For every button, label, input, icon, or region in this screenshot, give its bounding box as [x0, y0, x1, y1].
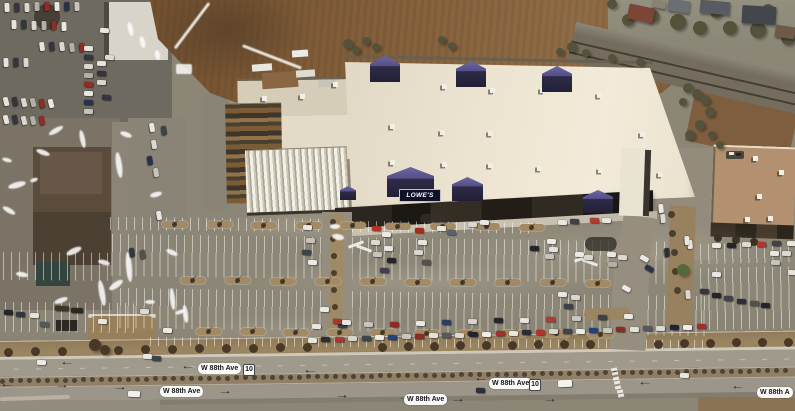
car: [418, 240, 427, 245]
light-pole-shadow: [351, 221, 357, 229]
car: [105, 55, 114, 60]
shrub: [288, 375, 293, 380]
car: [312, 324, 321, 329]
shrub: [522, 372, 527, 377]
car: [102, 95, 111, 100]
parking-island: [180, 277, 206, 284]
car: [575, 252, 584, 257]
parking-island: [196, 328, 222, 335]
garden-center-roof: [245, 146, 349, 216]
car: [416, 321, 425, 326]
shrub: [171, 376, 176, 381]
shrub: [99, 377, 104, 382]
shrub: [630, 370, 635, 375]
car: [659, 204, 664, 213]
parking-island: [360, 278, 386, 285]
shrub: [540, 371, 545, 376]
shrub: [297, 375, 302, 380]
car: [4, 310, 13, 315]
car: [772, 241, 781, 246]
car: [737, 299, 746, 304]
hvac-unit: [490, 88, 495, 93]
house-roof: [699, 0, 730, 15]
shrub: [756, 368, 761, 373]
tree: [100, 345, 110, 355]
car: [84, 46, 93, 51]
car: [536, 330, 545, 335]
shrub: [729, 369, 734, 374]
tree: [372, 43, 380, 51]
car: [390, 321, 399, 326]
tree: [750, 22, 766, 38]
car: [570, 219, 579, 224]
parking-island: [207, 221, 233, 228]
shrub: [162, 376, 167, 381]
car: [482, 331, 491, 336]
shrub: [783, 368, 788, 373]
parking-island: [162, 221, 188, 228]
shrub: [270, 375, 275, 380]
parking-island: [327, 329, 353, 336]
car: [128, 391, 140, 397]
parking-island: [225, 277, 251, 284]
shrub: [195, 344, 204, 353]
car: [371, 240, 380, 245]
lane-arrow: ←: [181, 362, 196, 372]
car: [509, 331, 518, 336]
shrub: [450, 373, 455, 378]
shrub: [621, 370, 626, 375]
car: [348, 336, 357, 341]
house-roof: [774, 25, 795, 40]
car: [97, 80, 106, 85]
tree: [556, 48, 564, 56]
car: [607, 252, 616, 257]
shrub: [666, 370, 671, 375]
shrub: [594, 371, 599, 376]
parking-island: [519, 224, 545, 231]
shrub: [504, 372, 509, 377]
car: [75, 2, 80, 11]
aerial-map-view[interactable]: ←←←←←←←→→→→→→→W 88th Ave10W 88th Ave10W …: [0, 0, 795, 411]
car: [373, 252, 382, 257]
car: [468, 319, 477, 324]
shrub: [459, 372, 464, 377]
hvac-unit: [390, 124, 395, 129]
car: [624, 314, 633, 319]
car: [415, 228, 424, 233]
ground-patch: [736, 153, 741, 156]
car: [712, 272, 721, 277]
car: [308, 260, 317, 265]
car: [727, 242, 736, 247]
car: [98, 319, 107, 324]
ground-patch: [729, 152, 734, 155]
car: [84, 91, 93, 96]
house-roof: [742, 5, 777, 25]
car: [5, 3, 10, 12]
tree: [708, 131, 716, 139]
car: [480, 220, 489, 225]
tree: [677, 264, 689, 276]
car: [558, 292, 567, 297]
east-strip-building-storefront: [710, 223, 793, 240]
hvac-unit: [390, 160, 395, 165]
car: [152, 356, 161, 361]
shrub: [430, 342, 439, 351]
car: [661, 214, 666, 223]
car: [302, 250, 311, 255]
car: [590, 218, 599, 223]
car: [308, 337, 317, 342]
shrub: [4, 348, 13, 357]
car: [520, 317, 529, 322]
road-label: W 88th Ave: [160, 386, 203, 397]
car: [303, 225, 312, 230]
hvac-unit: [442, 84, 447, 89]
car: [602, 218, 611, 223]
shrub: [414, 373, 419, 378]
car: [71, 308, 83, 313]
parking-island: [385, 223, 411, 230]
car: [143, 354, 152, 359]
shrub: [774, 368, 779, 373]
shrub: [404, 342, 413, 351]
car: [670, 325, 679, 330]
car: [342, 320, 351, 325]
tree: [448, 42, 456, 50]
shrub: [144, 377, 149, 382]
car: [530, 246, 539, 251]
parking-island: [540, 279, 566, 286]
snow-patch: [330, 224, 340, 229]
lane-arrow: →: [55, 381, 70, 391]
car: [65, 2, 70, 11]
shrub: [351, 374, 356, 379]
lane-arrow: ←: [0, 380, 15, 390]
shrub: [189, 376, 194, 381]
tree: [716, 141, 724, 149]
shrub: [468, 372, 473, 377]
shrub: [639, 370, 644, 375]
car: [24, 58, 29, 67]
car: [30, 313, 39, 318]
road-label: W 88th A: [757, 387, 793, 398]
hvac-unit: [488, 131, 493, 136]
tree: [723, 21, 737, 35]
shrub: [405, 373, 410, 378]
shrub: [549, 371, 554, 376]
shrub: [706, 339, 715, 348]
tree: [352, 46, 360, 54]
car: [630, 327, 639, 332]
ground-patch: [292, 49, 308, 57]
car: [589, 328, 598, 333]
car: [455, 332, 464, 337]
shrub: [114, 346, 123, 355]
car: [603, 327, 612, 332]
tree: [705, 107, 715, 117]
car: [384, 246, 393, 251]
shrub: [249, 344, 258, 353]
shrub: [758, 338, 767, 347]
shrub: [225, 376, 230, 381]
car: [787, 241, 795, 246]
hvac-unit: [488, 163, 493, 168]
road-label: W 88th Ave: [404, 394, 447, 405]
shrub: [513, 372, 518, 377]
car: [724, 296, 733, 301]
car: [563, 329, 572, 334]
shrub: [668, 211, 675, 218]
road-label: W 88th Ave: [198, 363, 241, 374]
car: [683, 325, 692, 330]
car: [576, 328, 585, 333]
shrub: [784, 338, 793, 347]
route-shield: 10: [529, 379, 541, 391]
hvac-unit: [757, 194, 762, 199]
car: [697, 324, 706, 329]
shrub: [586, 340, 595, 349]
car: [140, 309, 149, 314]
shrub: [279, 375, 284, 380]
tree: [582, 49, 590, 57]
shrub: [423, 373, 428, 378]
car: [656, 326, 665, 331]
shrub: [234, 375, 239, 380]
tree: [685, 130, 695, 140]
shrub: [369, 374, 374, 379]
shrub: [576, 371, 581, 376]
car: [12, 20, 17, 29]
road-label: W 88th Ave: [489, 378, 532, 389]
car: [414, 250, 423, 255]
car: [598, 315, 607, 320]
car: [442, 320, 451, 325]
shrub: [222, 344, 231, 353]
shrub: [680, 339, 689, 348]
lane-arrow: →: [543, 395, 558, 405]
tree: [567, 42, 577, 52]
tree: [695, 120, 705, 130]
shrub: [669, 230, 676, 237]
car: [32, 21, 37, 30]
car: [742, 242, 751, 247]
shrub: [243, 375, 248, 380]
shrub: [567, 371, 572, 376]
shrub: [45, 378, 50, 383]
car: [387, 258, 396, 263]
parking-island: [315, 278, 341, 285]
car: [37, 360, 46, 365]
car: [100, 28, 109, 33]
ground-patch: [698, 397, 795, 411]
shrub: [324, 374, 329, 379]
car: [59, 42, 65, 51]
ground-patch: [296, 69, 315, 77]
car: [84, 55, 93, 60]
shrub: [732, 338, 741, 347]
shrub: [331, 253, 337, 259]
car: [608, 262, 617, 267]
shrub: [141, 345, 150, 354]
car: [52, 21, 57, 30]
shrub: [333, 374, 338, 379]
car: [700, 289, 709, 294]
shrub: [342, 374, 347, 379]
shrub: [585, 371, 590, 376]
car: [712, 243, 721, 248]
ground-patch: [420, 214, 446, 223]
car: [771, 260, 780, 265]
shrub: [216, 376, 221, 381]
car: [15, 3, 20, 12]
car: [469, 332, 478, 337]
shrub: [303, 343, 312, 352]
shrub: [58, 347, 67, 356]
shrub: [180, 376, 185, 381]
car: [388, 335, 397, 340]
shrub: [671, 249, 678, 256]
car: [549, 247, 558, 252]
parking-island: [495, 279, 521, 286]
car: [40, 322, 49, 327]
car: [685, 236, 690, 245]
shrub: [531, 371, 536, 376]
shrub: [714, 234, 722, 242]
parking-island: [240, 328, 266, 335]
hvac-unit: [300, 94, 305, 99]
car: [25, 3, 30, 12]
car: [476, 388, 485, 393]
hvac-unit: [440, 130, 445, 135]
shrub: [261, 375, 266, 380]
route-shield: 10: [243, 364, 255, 376]
car: [84, 64, 93, 69]
hvac-unit: [768, 216, 773, 221]
car: [494, 318, 503, 323]
ground-patch: [252, 63, 272, 71]
car: [546, 317, 555, 322]
shrub: [432, 373, 437, 378]
lane-arrow: →: [335, 391, 350, 401]
parking-island: [450, 279, 476, 286]
ground-patch: [261, 71, 298, 89]
parking-island: [251, 222, 277, 229]
car: [84, 82, 93, 87]
shrub: [207, 376, 212, 381]
lane-arrow: →: [451, 395, 466, 405]
car: [306, 238, 315, 243]
shrub: [674, 287, 681, 294]
shrub: [495, 372, 500, 377]
shrub: [331, 270, 337, 276]
shrub: [657, 370, 662, 375]
car: [572, 316, 581, 321]
parking-stall-lines: [5, 302, 140, 333]
ground-patch: [40, 152, 102, 194]
car: [545, 254, 554, 259]
tree: [636, 58, 644, 66]
shrub: [558, 371, 563, 376]
car: [442, 333, 451, 338]
lane-arrow: ←: [638, 378, 653, 388]
car: [761, 303, 770, 308]
parking-island: [405, 279, 431, 286]
shrub: [738, 369, 743, 374]
tree: [679, 98, 687, 106]
parking-island: [270, 278, 296, 285]
parking-island: [340, 222, 366, 229]
shrub: [36, 378, 41, 383]
parking-stall-lines: [3, 252, 108, 281]
shrub: [675, 370, 680, 375]
hvac-unit: [640, 132, 645, 137]
hvac-unit: [597, 93, 602, 98]
lane-arrow: ←: [474, 374, 489, 384]
ground-patch: [585, 237, 617, 251]
car: [402, 334, 411, 339]
shrub: [693, 369, 698, 374]
car: [468, 222, 477, 227]
car: [320, 307, 329, 312]
parking-island: [585, 280, 611, 287]
tree: [362, 37, 370, 45]
tree: [693, 21, 707, 35]
shrub: [720, 369, 725, 374]
car: [558, 220, 567, 225]
shrub: [276, 343, 285, 352]
shrub: [27, 378, 32, 383]
car: [788, 270, 795, 275]
drainage-pond: [176, 64, 192, 74]
car: [45, 2, 50, 11]
car: [333, 319, 342, 324]
car: [22, 20, 27, 29]
shrub: [90, 377, 95, 382]
tree: [438, 36, 446, 44]
shrub: [387, 373, 392, 378]
car: [335, 336, 344, 341]
car: [380, 268, 389, 273]
shrub: [396, 373, 401, 378]
car: [382, 232, 391, 237]
car: [584, 255, 593, 260]
hvac-unit: [333, 82, 338, 87]
lane-arrow: ←: [60, 358, 75, 368]
car: [372, 226, 381, 231]
shrub: [198, 376, 203, 381]
car: [686, 290, 691, 299]
hvac-unit: [442, 162, 447, 167]
car: [549, 329, 558, 334]
hvac-unit: [598, 168, 603, 173]
lane-arrow: ←: [731, 382, 746, 392]
tree: [608, 54, 616, 62]
lane-arrow: →: [113, 383, 128, 393]
car: [757, 242, 766, 247]
car: [429, 333, 438, 338]
shrub: [332, 304, 338, 310]
shrub: [482, 341, 491, 350]
shrub: [534, 340, 543, 349]
hvac-unit: [658, 172, 663, 177]
car: [35, 2, 40, 11]
car: [437, 226, 446, 231]
shrub: [18, 378, 23, 383]
car: [750, 301, 759, 306]
car: [680, 373, 689, 378]
